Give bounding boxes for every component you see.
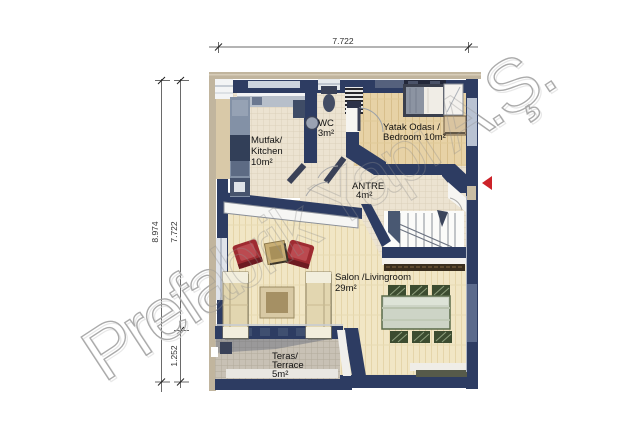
svg-text:Mutfak/: Mutfak/ bbox=[251, 135, 283, 146]
svg-text:Salon /Livingroom: Salon /Livingroom bbox=[335, 272, 411, 283]
svg-text:Kitchen: Kitchen bbox=[251, 146, 283, 157]
svg-text:8.974: 8.974 bbox=[150, 221, 160, 243]
svg-text:10m²: 10m² bbox=[251, 157, 273, 168]
svg-text:7.722: 7.722 bbox=[169, 221, 179, 243]
svg-text:7.722: 7.722 bbox=[332, 36, 354, 46]
svg-text:5m²: 5m² bbox=[272, 369, 288, 380]
svg-text:29m²: 29m² bbox=[335, 283, 357, 294]
svg-text:3m²: 3m² bbox=[318, 128, 334, 139]
